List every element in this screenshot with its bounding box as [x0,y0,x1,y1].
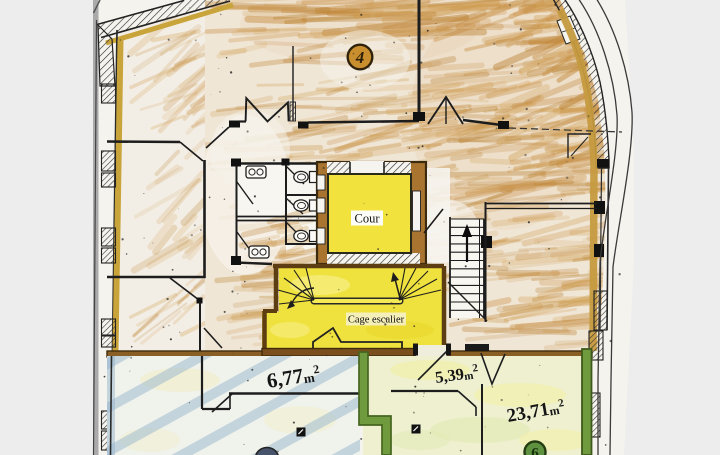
svg-text:Cage escalier: Cage escalier [348,315,405,326]
svg-text:6: 6 [531,446,539,455]
svg-text:Cour: Cour [355,212,381,226]
svg-text:4: 4 [355,48,365,67]
